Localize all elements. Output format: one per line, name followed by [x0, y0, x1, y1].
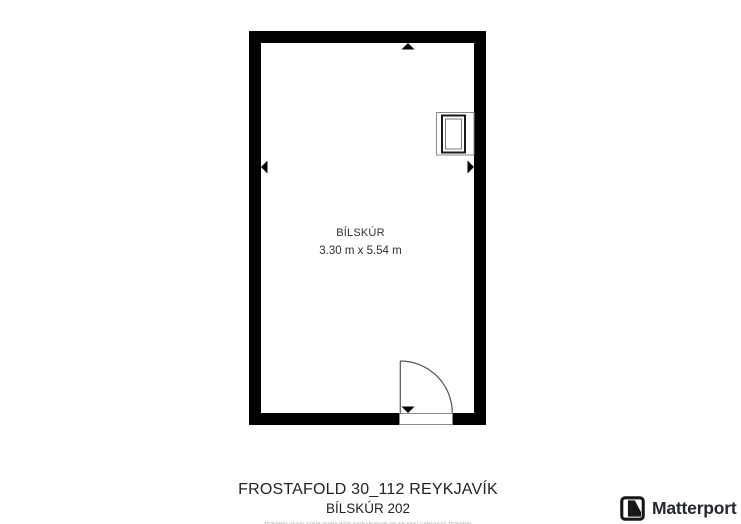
matterport-wordmark: Matterport	[652, 498, 737, 519]
door	[400, 361, 453, 425]
matterport-logo: Matterport	[620, 496, 737, 521]
room-label-group: BÍLSKÚR 3.30 m x 5.54 m	[242, 227, 479, 258]
door-threshold	[400, 414, 453, 425]
unit-subtitle: BÍLSKÚR 202	[118, 501, 618, 516]
footer: FROSTAFOLD 30_112 REYKJAVÍK BÍLSKÚR 202 …	[118, 481, 618, 524]
matterport-logo-icon	[620, 496, 645, 521]
dimension-arrow-left-icon	[261, 161, 268, 174]
wall-bottom-left-segment	[249, 413, 399, 425]
door-swing-arc	[400, 361, 452, 413]
address-title: FROSTAFOLD 30_112 REYKJAVÍK	[118, 481, 618, 499]
room-dimensions: 3.30 m x 5.54 m	[242, 245, 479, 258]
dimension-arrow-right-icon	[468, 161, 475, 174]
floorplan: BÍLSKÚR 3.30 m x 5.54 m	[249, 31, 486, 425]
dimension-arrow-down-icon	[402, 407, 415, 414]
wall-top	[249, 31, 486, 43]
wall-bottom-right-segment	[453, 413, 486, 425]
dimension-arrow-up-icon	[402, 43, 415, 50]
appliance-fixture	[437, 113, 475, 156]
floorplan-page: BÍLSKÚR 3.30 m x 5.54 m FROSTAFOLD 30_11…	[0, 0, 741, 524]
room-name: BÍLSKÚR	[242, 227, 479, 240]
